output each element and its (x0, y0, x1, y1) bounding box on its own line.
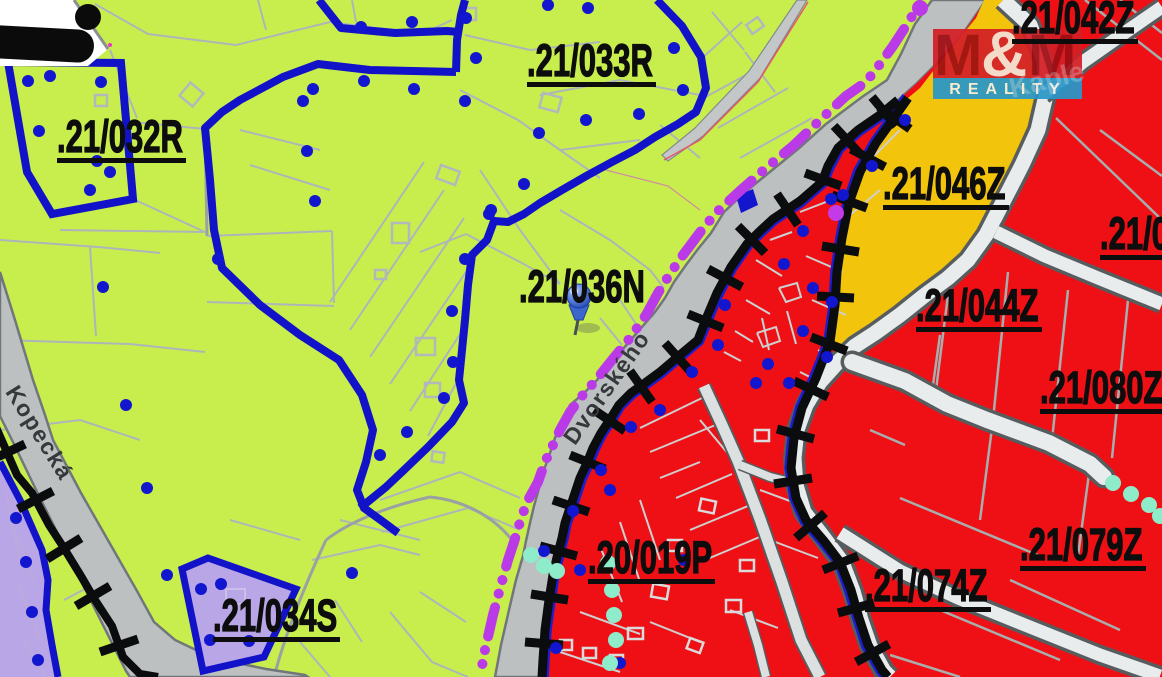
svg-text:.21/036N: .21/036N (519, 262, 645, 312)
svg-text:.20/019P: .20/019P (588, 533, 712, 583)
svg-text:.21/032R: .21/032R (57, 112, 183, 162)
svg-text:.21/044Z: .21/044Z (916, 281, 1039, 331)
svg-text:.21/046Z: .21/046Z (883, 159, 1006, 209)
svg-text:.21/033R: .21/033R (527, 36, 653, 86)
svg-text:.21/0: .21/0 (1100, 209, 1162, 259)
svg-text:.21/034S: .21/034S (213, 591, 337, 641)
svg-text:.21/042Z: .21/042Z (1012, 0, 1135, 43)
svg-text:.21/080Z: .21/080Z (1040, 363, 1162, 413)
svg-text:.21/079Z: .21/079Z (1020, 520, 1143, 570)
svg-text:.21/074Z: .21/074Z (865, 561, 988, 611)
